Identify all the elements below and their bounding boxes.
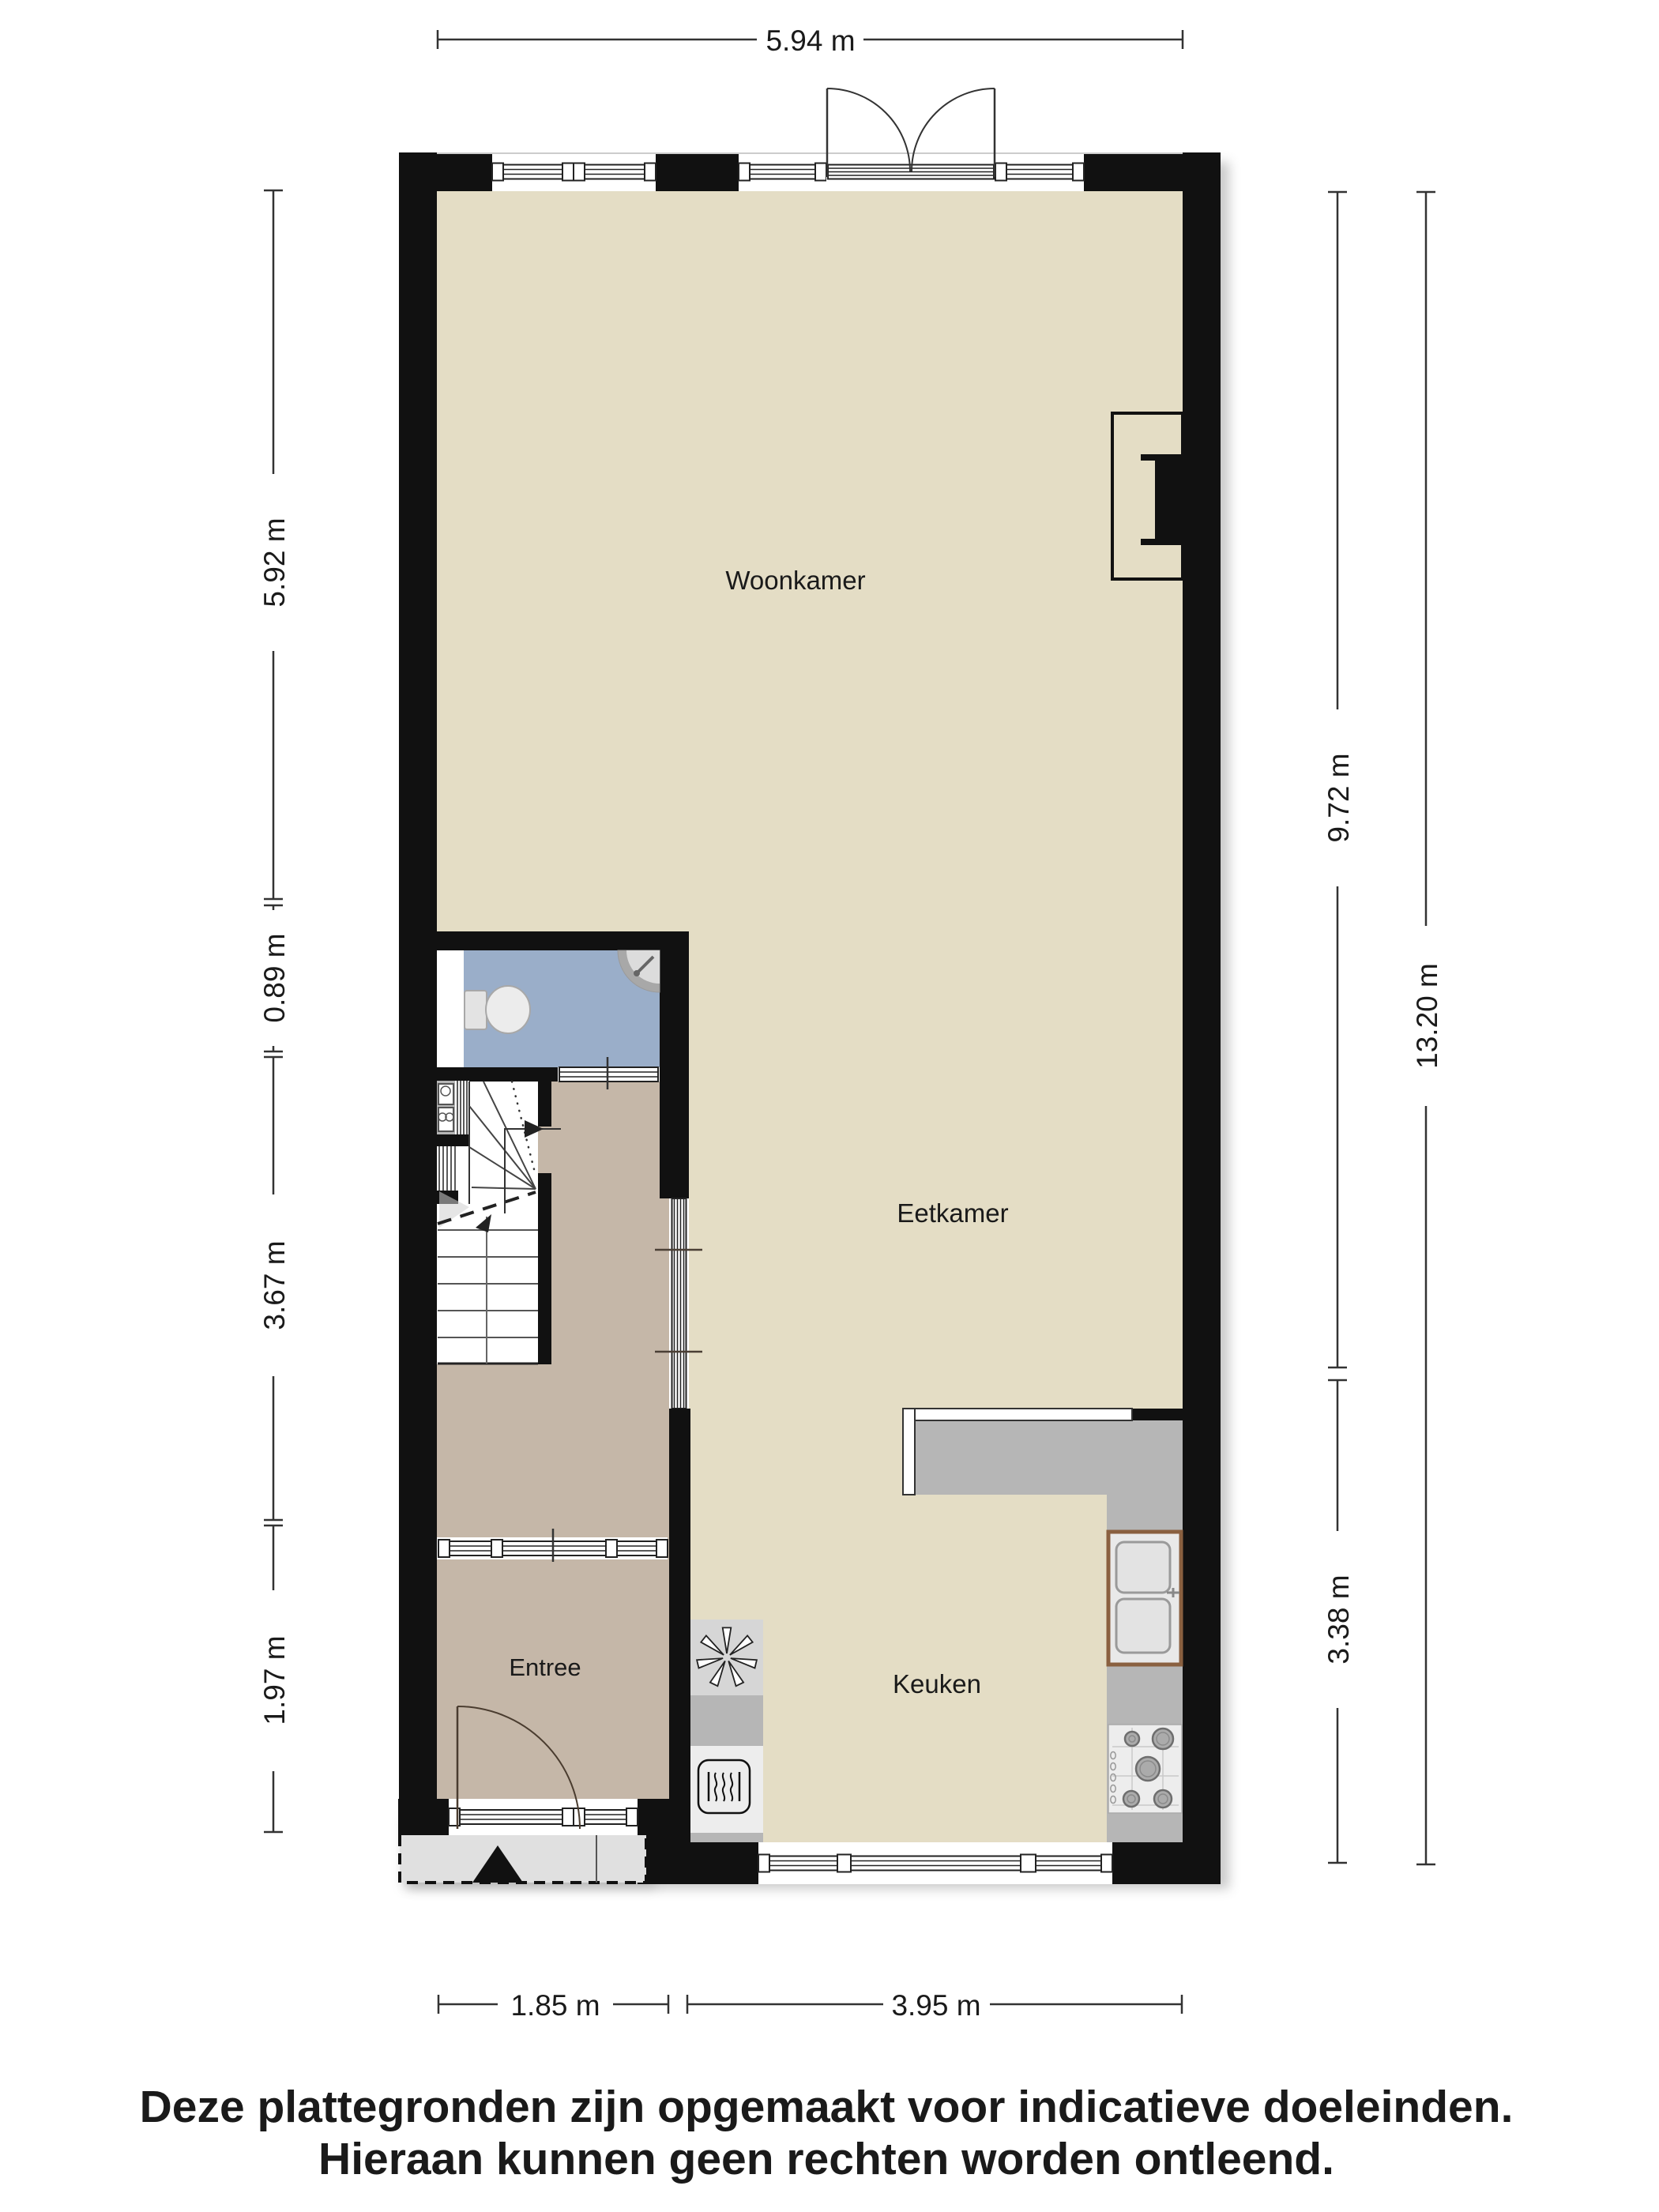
svg-text:3.38 m: 3.38 m <box>1322 1574 1355 1664</box>
svg-text:1.97 m: 1.97 m <box>258 1635 291 1725</box>
svg-text:Deze plattegronden zijn opgema: Deze plattegronden zijn opgemaakt voor i… <box>140 2082 1514 2132</box>
svg-text:Eetkamer: Eetkamer <box>897 1198 1008 1228</box>
svg-text:Woonkamer: Woonkamer <box>725 566 865 595</box>
svg-text:9.72 m: 9.72 m <box>1322 753 1355 842</box>
svg-text:3.95 m: 3.95 m <box>891 1989 980 2022</box>
svg-text:Hieraan kunnen geen rechten wo: Hieraan kunnen geen rechten worden ontle… <box>318 2134 1334 2184</box>
svg-text:Entree: Entree <box>509 1653 581 1681</box>
svg-text:3.67 m: 3.67 m <box>258 1240 291 1330</box>
svg-text:Keuken: Keuken <box>893 1669 981 1698</box>
svg-text:5.92 m: 5.92 m <box>258 517 291 607</box>
svg-text:1.85 m: 1.85 m <box>510 1989 600 2022</box>
svg-text:0.89 m: 0.89 m <box>258 933 291 1022</box>
svg-text:5.94 m: 5.94 m <box>766 24 855 57</box>
svg-text:13.20 m: 13.20 m <box>1411 963 1443 1069</box>
